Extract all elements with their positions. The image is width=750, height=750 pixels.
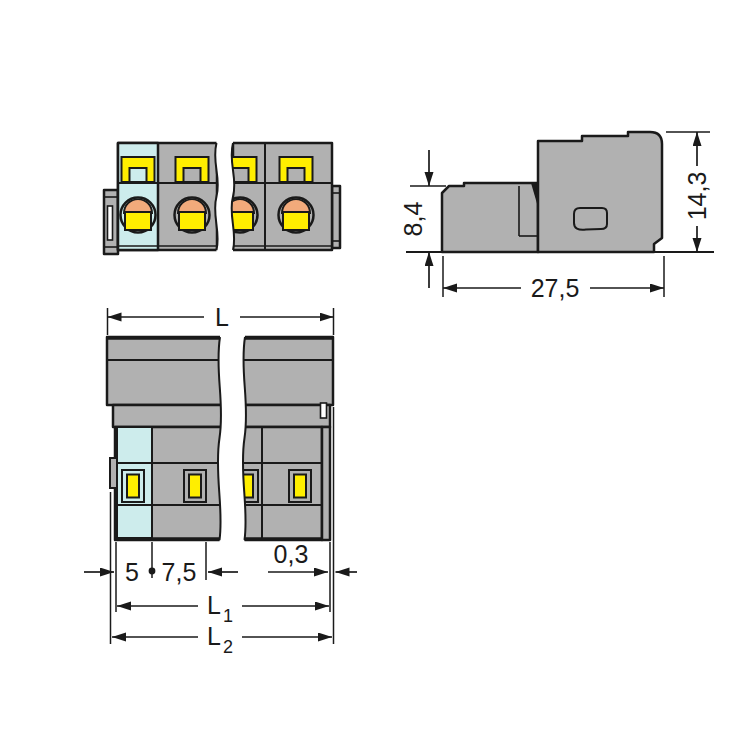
flange-slot	[108, 206, 113, 240]
wire-entry-2	[175, 198, 210, 233]
top-view: L 5 7,5 0,3	[84, 303, 357, 657]
top-slot-4	[289, 470, 311, 502]
dim-label-L1-sub: 1	[223, 606, 233, 626]
dimension-l1: L 1	[117, 591, 329, 626]
top-slot-2	[184, 470, 206, 502]
actuator-button-2	[176, 157, 209, 182]
dim-label-0-3: 0,3	[274, 540, 309, 568]
dim-label-14-3: 14,3	[683, 172, 711, 221]
connector-drawing-svg: 8,4 14,3 27,5	[0, 0, 750, 750]
front-right-half	[223, 143, 333, 250]
technical-drawing-page: 8,4 14,3 27,5	[0, 0, 750, 750]
front-view	[104, 143, 340, 254]
dimension-pitch-row: 5 7,5	[84, 558, 238, 586]
contact-4	[283, 212, 309, 230]
dim-label-7-5: 7,5	[162, 558, 197, 586]
contact-1	[125, 212, 151, 230]
front-left-half	[118, 143, 217, 250]
top-slot-1	[122, 470, 144, 502]
wire-entry-1	[121, 198, 156, 233]
actuator-button-4	[280, 157, 313, 182]
actuator-button-1	[122, 157, 155, 182]
dimension-length: L	[108, 303, 334, 335]
side-view: 8,4 14,3 27,5	[399, 132, 714, 302]
dimension-dot	[149, 568, 156, 575]
side-front-housing	[442, 183, 538, 252]
contact-3	[227, 212, 253, 230]
top-side-wall	[322, 427, 330, 540]
dim-label-5: 5	[125, 558, 139, 586]
dimension-front-height: 8,4	[399, 150, 446, 288]
transition-notch	[321, 403, 327, 418]
dim-label-L2: L	[207, 622, 221, 650]
top-left-flange	[110, 458, 117, 488]
wire-entry-3	[223, 198, 258, 233]
dimension-edge-offset: 0,3	[268, 540, 357, 572]
dim-label-L1: L	[207, 591, 221, 619]
dimension-l2: L 2	[112, 622, 332, 657]
actuator-button-3	[224, 157, 257, 182]
front-left-flange	[104, 190, 118, 254]
dimension-depth: 27,5	[443, 256, 664, 302]
drawing-root: 8,4 14,3 27,5	[84, 132, 714, 657]
top-slot-3	[236, 470, 258, 502]
contact-2	[179, 212, 205, 230]
dim-label-27-5: 27,5	[531, 274, 580, 302]
dimension-total-height: 14,3	[666, 132, 711, 252]
wire-entry-4	[279, 198, 314, 233]
dim-label-L2-sub: 2	[223, 637, 233, 657]
side-rear-housing	[538, 132, 662, 252]
dim-label-L: L	[215, 303, 229, 331]
dim-label-8-4: 8,4	[399, 202, 427, 237]
